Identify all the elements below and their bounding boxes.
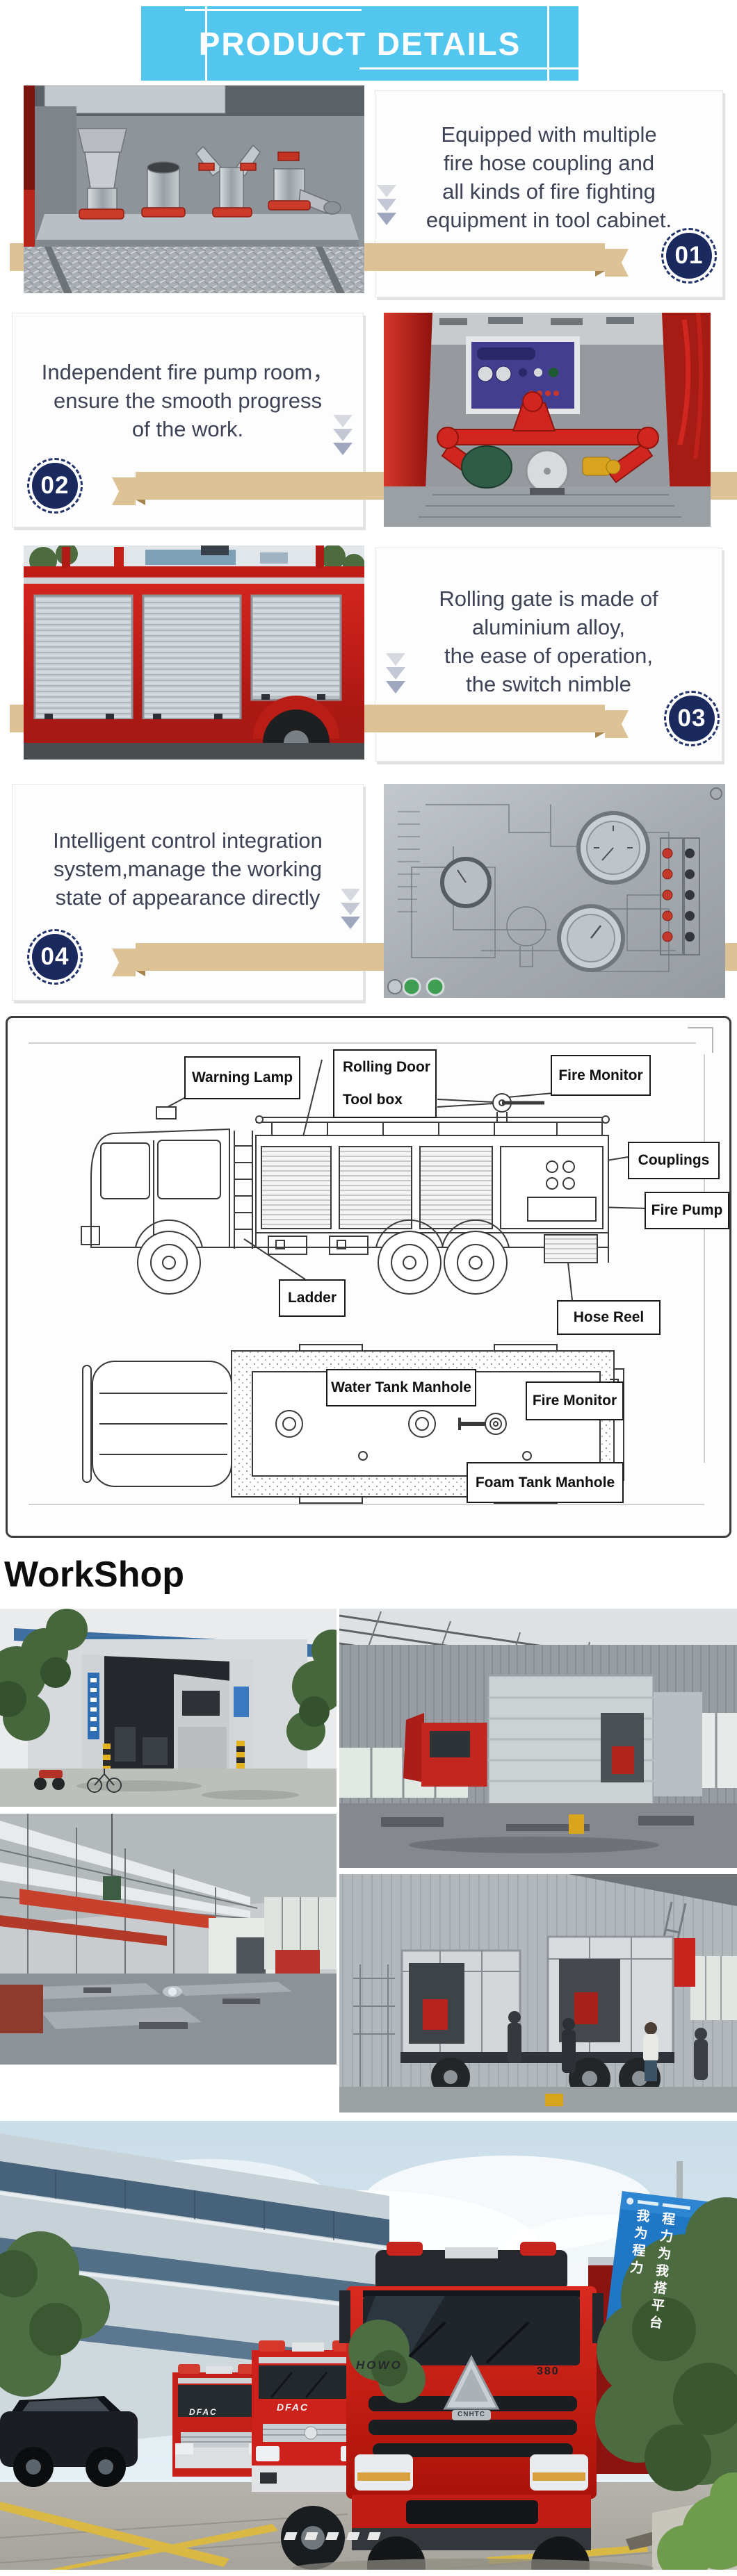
diagram-label-fire-monitor-side: Fire Monitor	[551, 1055, 651, 1096]
label-text: Rolling Door	[343, 1059, 430, 1076]
howo-model-text: 380	[537, 2365, 560, 2378]
workshop-photo-assembly-hall	[339, 1609, 737, 1868]
feature-text-line: fire hose coupling and	[375, 149, 722, 177]
diagram-label-fire-pump: Fire Pump	[645, 1192, 729, 1229]
step-badge-01: 01	[661, 228, 717, 284]
dfac-brand-text: DFAC	[277, 2402, 309, 2413]
fire-trucks-art	[0, 2121, 737, 2570]
diagram-label-water-tank-manhole: Water Tank Manhole	[326, 1369, 476, 1406]
photo-rolling-gate	[24, 545, 364, 760]
cnhtc-emblem-text: CNHTC	[453, 2411, 489, 2418]
banner-decor-line	[205, 3, 207, 84]
feature-text-line: system,manage the working	[13, 855, 363, 883]
workshop-box-art	[339, 1874, 737, 2113]
feature-text-line: all kinds of fire fighting	[375, 177, 722, 206]
label-text: Tool box	[343, 1092, 403, 1108]
truck-structure-diagram: Warning Lamp Rolling Door Tool box Fire …	[6, 1016, 731, 1538]
feature-text-line: the switch nimble	[375, 670, 722, 698]
feature-text-line: Independent fire pump room，	[13, 358, 363, 386]
diagram-label-warning-lamp: Warning Lamp	[184, 1056, 300, 1099]
feature-text-line: Equipped with multiple	[375, 120, 722, 149]
photo-pump-room-art	[384, 313, 711, 527]
step-badge-02: 02	[27, 458, 83, 514]
photo-tool-cabinet	[24, 85, 364, 293]
label-text: Fire Monitor	[558, 1067, 642, 1084]
feature-text-line: state of appearance directly	[13, 883, 363, 912]
down-arrows-icon	[386, 653, 405, 695]
label-text: Water Tank Manhole	[331, 1379, 471, 1396]
photo-tool-cabinet-art	[24, 85, 364, 293]
down-arrows-icon	[333, 415, 353, 457]
step-number: 03	[669, 696, 715, 741]
product-details-page: PRODUCT DETAILS Equipped with multiple f…	[0, 0, 737, 2576]
label-text: Warning Lamp	[192, 1069, 293, 1086]
photo-fire-pump-room	[384, 313, 711, 527]
workshop-crane-art	[0, 1814, 337, 2065]
photo-control-panel	[384, 784, 725, 998]
diagram-label-couplings: Couplings	[628, 1142, 720, 1179]
diagram-label-foam-tank-manhole: Foam Tank Manhole	[467, 1462, 624, 1503]
label-text: Couplings	[638, 1152, 710, 1169]
feature-text-line: Intelligent control integration	[13, 826, 363, 855]
down-arrows-icon	[377, 185, 396, 227]
label-text: Fire Monitor	[533, 1393, 617, 1409]
workshop-photo-crane-hall	[0, 1814, 337, 2065]
label-text: Ladder	[288, 1290, 337, 1306]
dfac-brand-text-far: DFAC	[189, 2407, 218, 2417]
step-badge-04: 04	[27, 929, 83, 985]
down-arrows-icon	[341, 889, 360, 930]
workshop-photo-box-assembly	[339, 1874, 737, 2113]
label-text: Foam Tank Manhole	[476, 1475, 615, 1491]
step-number: 04	[32, 934, 78, 980]
diagram-label-ladder: Ladder	[279, 1279, 346, 1317]
workshop-gate-art	[0, 1609, 337, 1807]
step-badge-03: 03	[664, 691, 720, 746]
photo-control-panel-art	[384, 784, 725, 998]
banner-decor-line	[359, 67, 586, 69]
page-title: PRODUCT DETAILS	[199, 25, 521, 63]
feature-text-line: of the work.	[13, 415, 363, 443]
step-number: 02	[32, 463, 78, 509]
label-text: Fire Pump	[651, 1202, 723, 1219]
diagram-label-hose-reel: Hose Reel	[557, 1300, 661, 1335]
feature-text-line: aluminium alloy,	[375, 613, 722, 641]
feature-text-line: the ease of operation,	[375, 641, 722, 670]
label-text: Hose Reel	[574, 1309, 645, 1326]
feature-text-line: equipment in tool cabinet.	[375, 206, 722, 234]
banner-decor-line	[185, 9, 362, 11]
workshop-photo-factory-gate	[0, 1609, 337, 1807]
step-number: 01	[666, 233, 712, 279]
photo-finished-fire-trucks: HOWO 380 CNHTC DFAC DFAC 我为程力 程力为我搭平台	[0, 2121, 737, 2570]
howo-brand-text: HOWO	[356, 2358, 403, 2372]
photo-rolling-gate-art	[24, 545, 364, 760]
workshop-heading: WorkShop	[4, 1554, 184, 1595]
feature-text-line: ensure the smooth progress	[13, 386, 363, 415]
feature-text-line: Rolling gate is made of	[375, 584, 722, 613]
diagram-label-fire-monitor-top: Fire Monitor	[526, 1381, 624, 1420]
banner-decor-line	[547, 3, 549, 84]
workshop-hall-art	[339, 1609, 737, 1868]
diagram-label-rolling-door-toolbox: Rolling Door Tool box	[333, 1049, 437, 1118]
